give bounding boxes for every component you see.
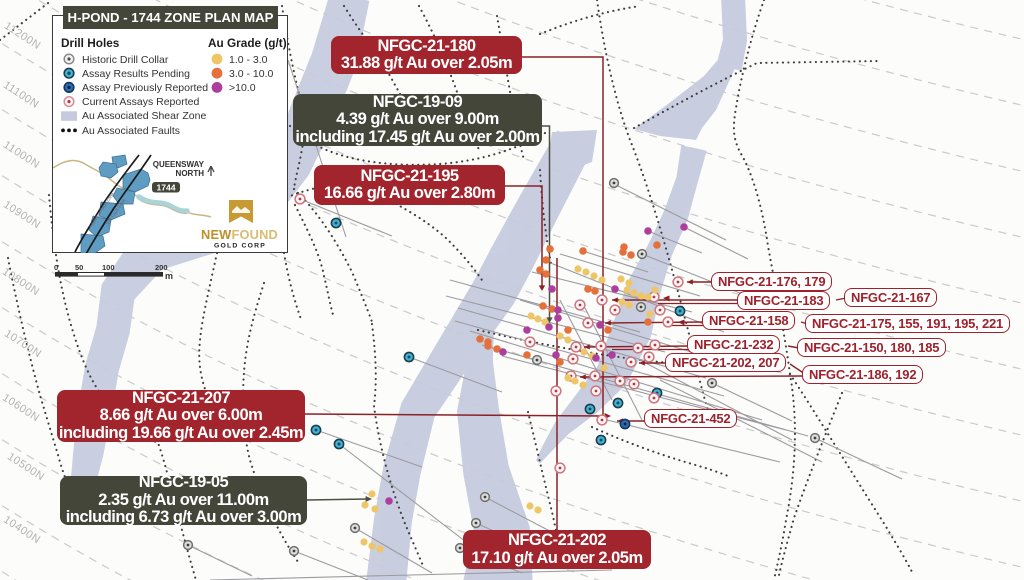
svg-text:m: m [165, 271, 173, 281]
svg-text:1744: 1744 [156, 183, 175, 193]
svg-text:NORTH: NORTH [175, 169, 204, 178]
svg-text:NEWFOUND: NEWFOUND [201, 227, 278, 242]
svg-text:50: 50 [75, 263, 83, 272]
svg-text:0: 0 [54, 263, 58, 272]
svg-text:100: 100 [102, 263, 115, 272]
svg-text:QUEENSWAY: QUEENSWAY [152, 160, 204, 169]
svg-text:GOLD CORP: GOLD CORP [214, 243, 266, 250]
